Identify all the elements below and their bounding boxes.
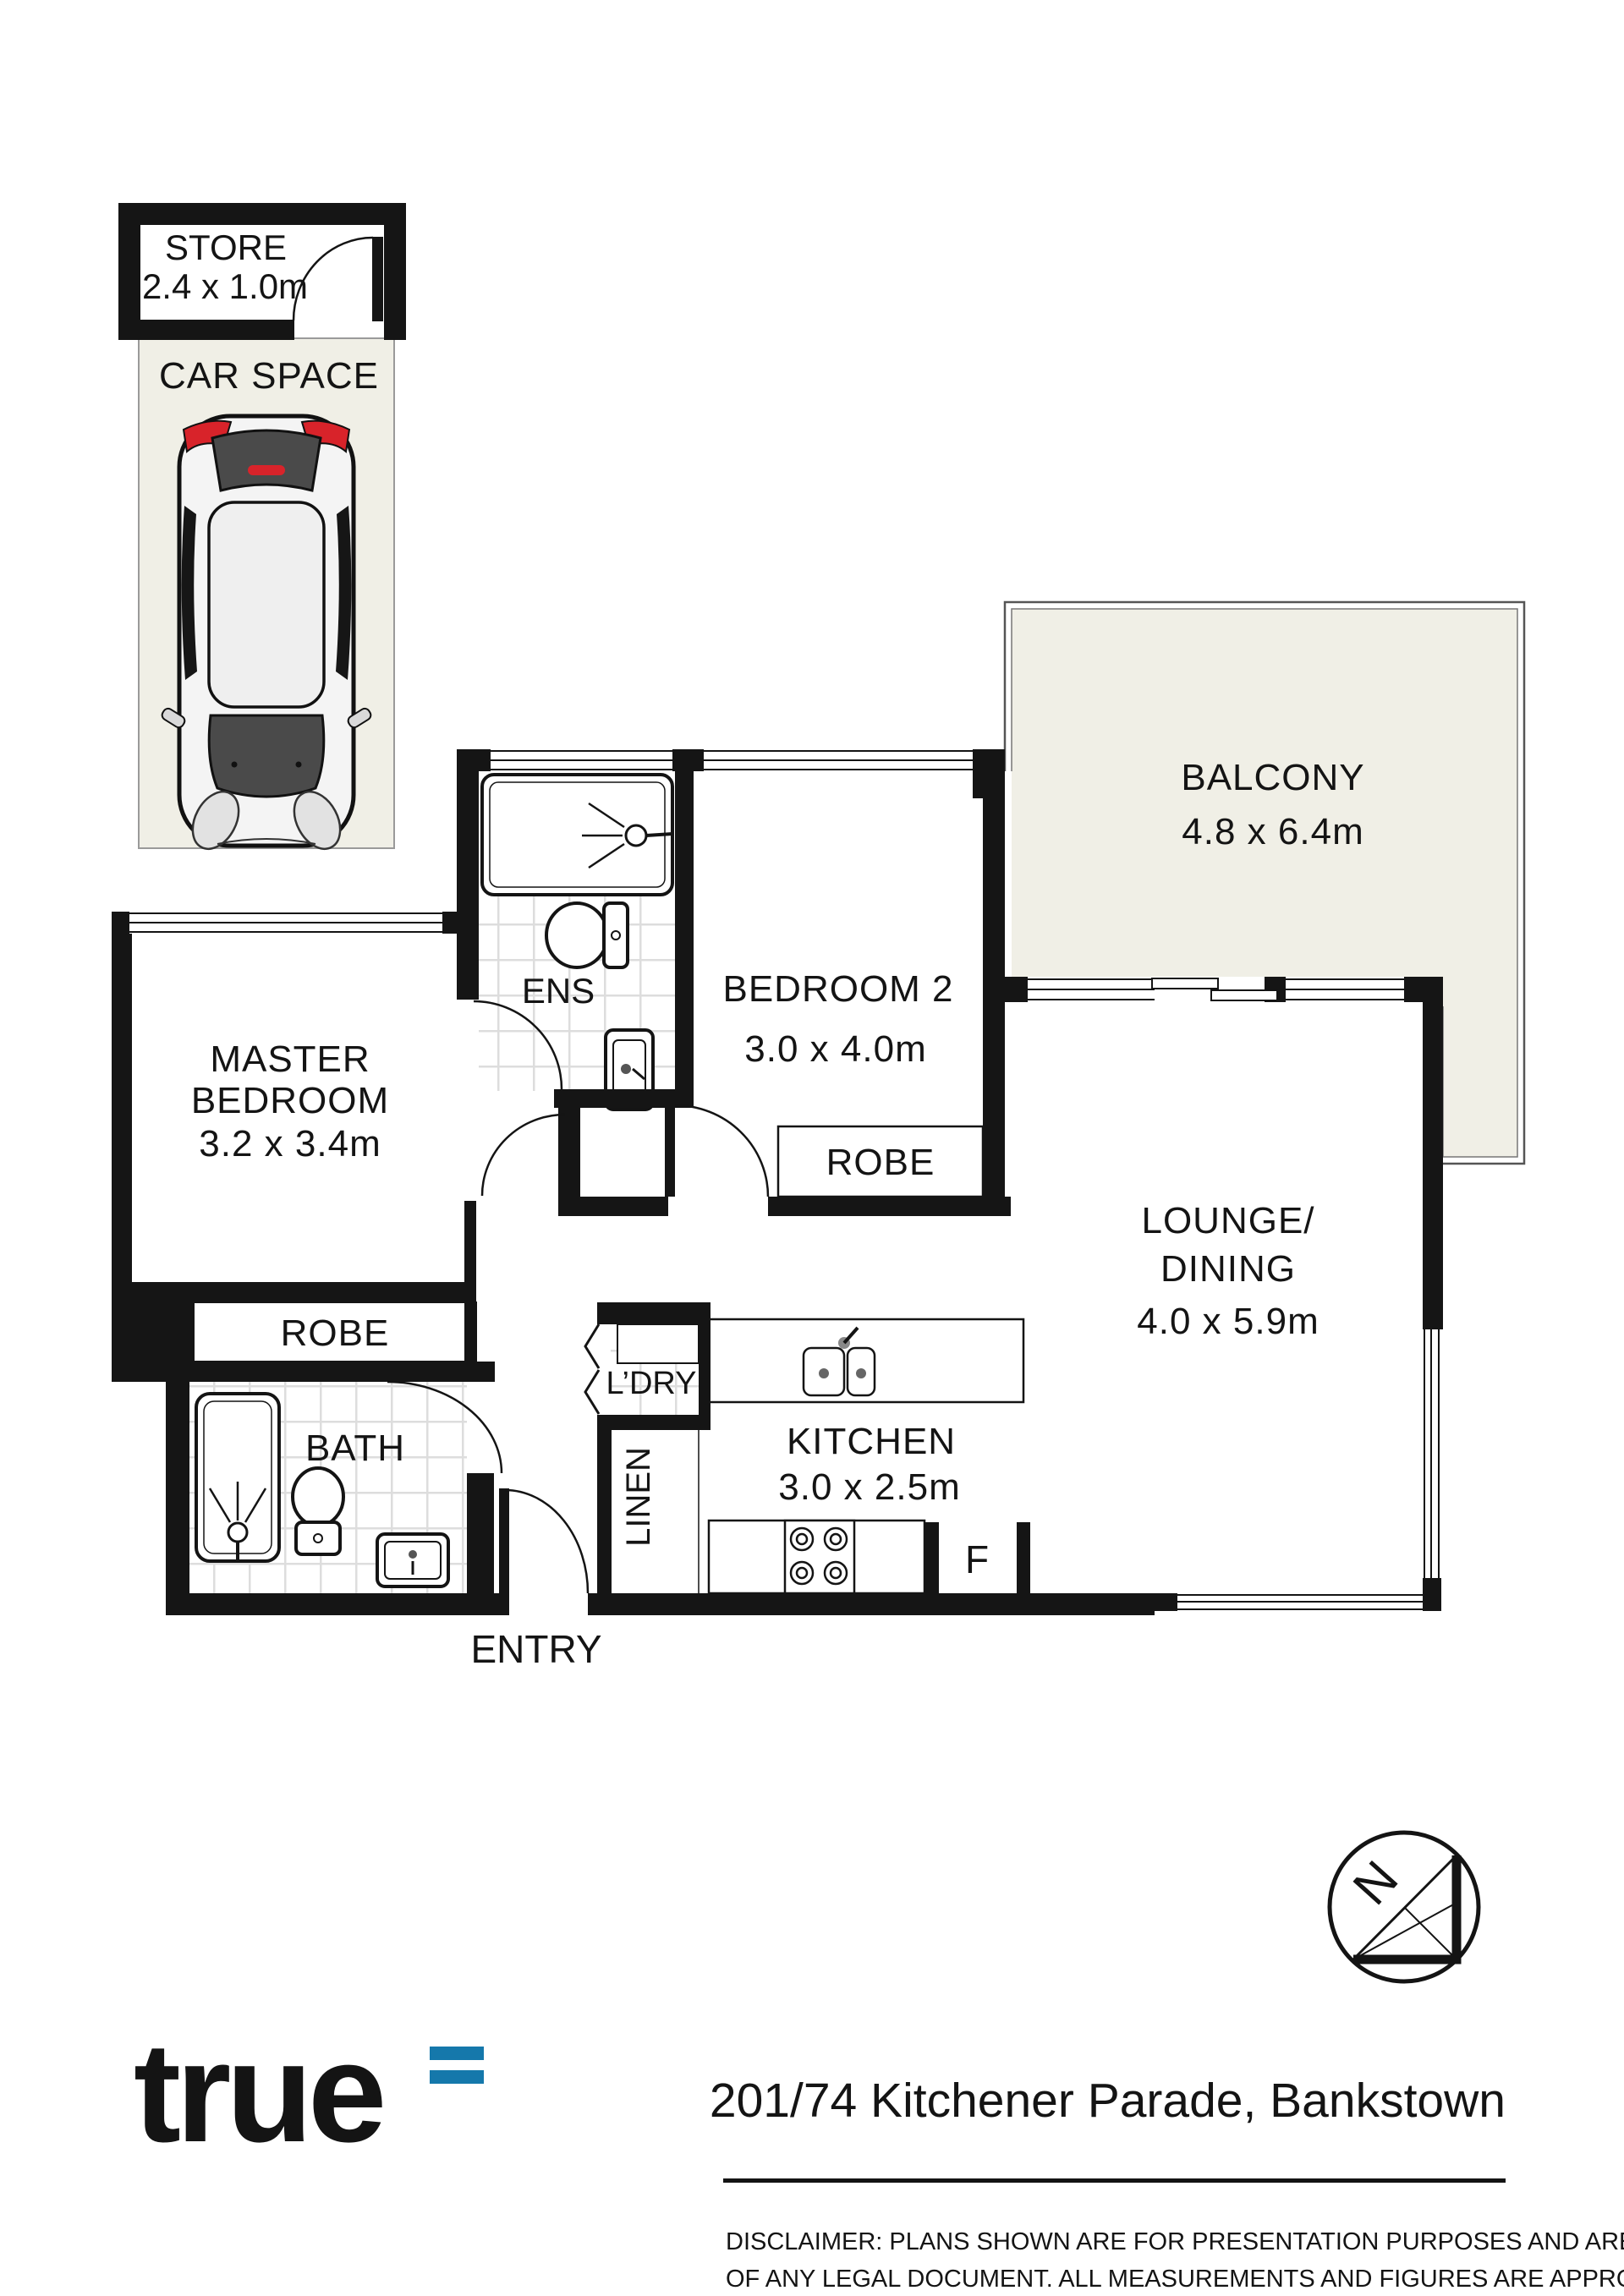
kitchen-bench-stove (709, 1521, 924, 1593)
bedroom2-door-arc (675, 1105, 768, 1197)
fridge-label: F (965, 1537, 989, 1581)
store-label: STORE (165, 227, 287, 267)
window-bedroom2 (704, 749, 973, 771)
sliding-door-balcony (1152, 977, 1277, 1002)
bath-tub (196, 1394, 279, 1561)
balcony-label: BALCONY (1181, 757, 1364, 798)
master-door-arc (482, 1115, 565, 1196)
footer-divider (723, 2178, 1506, 2183)
master-dims: 3.2 x 3.4m (199, 1123, 381, 1164)
lounge-label-1: LOUNGE/ (1141, 1200, 1314, 1241)
kitchen-label: KITCHEN (787, 1421, 956, 1462)
store-dims: 2.4 x 1.0m (142, 266, 308, 306)
kitchen-island (709, 1319, 1023, 1402)
property-address: 201/74 Kitchener Parade, Bankstown (710, 2074, 1506, 2128)
master-robe-label: ROBE (281, 1312, 390, 1354)
ens-toilet (546, 903, 628, 967)
footer: true 201/74 Kitchener Parade, Bankstown … (134, 2013, 1624, 2293)
bath-vanity (377, 1534, 448, 1586)
disclaimer-line-1: DISCLAIMER: PLANS SHOWN ARE FOR PRESENTA… (726, 2228, 1624, 2255)
car-space-label: CAR SPACE (159, 355, 379, 397)
washing-machine (617, 1324, 699, 1363)
linen-label: LINEN (620, 1447, 657, 1547)
window-balcony-left (1028, 977, 1155, 1002)
window-master (129, 912, 442, 934)
window-lounge-south (1177, 1593, 1423, 1611)
kitchen-dims: 3.0 x 2.5m (778, 1466, 960, 1508)
entry-door-leaf (499, 1488, 509, 1593)
north-arrow-icon: N (1330, 1833, 1479, 1981)
bedroom2-label: BEDROOM 2 (722, 968, 953, 1010)
bedroom2-door-leaf (665, 1099, 675, 1197)
window-lounge-east (1423, 1329, 1440, 1578)
laundry-label: L’DRY (606, 1366, 696, 1401)
lounge-label-2: DINING (1160, 1248, 1296, 1290)
floorplan-drawing: STORE 2.4 x 1.0m CAR SPACE BALCONY 4.8 x… (0, 0, 1624, 2296)
car-top-view (160, 416, 372, 857)
laundry-bifold-door (585, 1324, 599, 1414)
entry-label: ENTRY (470, 1627, 601, 1671)
balcony-dims: 4.8 x 6.4m (1182, 811, 1363, 852)
ens-shower (482, 775, 672, 895)
window-ens (491, 749, 672, 771)
bath-label: BATH (305, 1427, 405, 1469)
floorplan-page: STORE 2.4 x 1.0m CAR SPACE BALCONY 4.8 x… (0, 0, 1624, 2296)
store-door-leaf (372, 237, 383, 321)
lounge-dims: 4.0 x 5.9m (1137, 1301, 1319, 1342)
bedroom2-robe-label: ROBE (826, 1142, 935, 1183)
agency-logo: true (134, 2013, 382, 2172)
window-balcony-right (1286, 977, 1404, 1002)
bedroom2-dims: 3.0 x 4.0m (744, 1028, 926, 1070)
disclaimer-line-2: OF ANY LEGAL DOCUMENT. ALL MEASUREMENTS … (726, 2266, 1624, 2293)
master-label-1: MASTER (210, 1038, 370, 1080)
ens-label: ENS (522, 971, 595, 1011)
master-label-2: BEDROOM (191, 1080, 389, 1121)
bath-toilet (293, 1468, 343, 1554)
entry-door-arc (505, 1490, 588, 1593)
logo-equals-mark (430, 2047, 484, 2084)
